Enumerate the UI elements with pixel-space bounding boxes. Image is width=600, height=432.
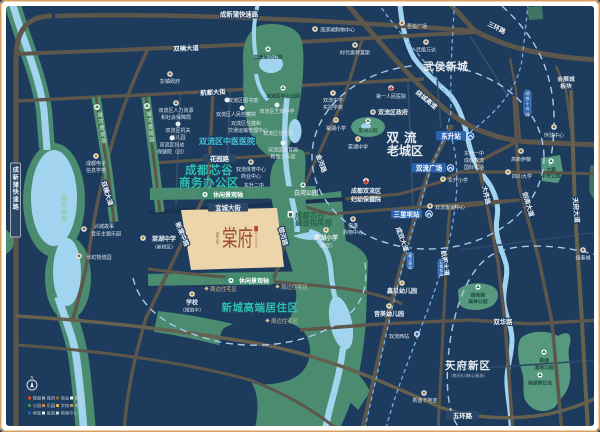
svg-text:乐园: 乐园 <box>47 402 55 409</box>
svg-text:东升一中: 东升一中 <box>464 150 484 157</box>
svg-text:音美幼儿园: 音美幼儿园 <box>374 310 404 318</box>
svg-text:湿地公园: 湿地公园 <box>534 364 553 371</box>
svg-text:维他路: 维他路 <box>471 292 486 299</box>
svg-text:新蓝卡地亚: 新蓝卡地亚 <box>412 397 437 404</box>
svg-text:成都芯谷: 成都芯谷 <box>185 163 233 177</box>
svg-text:森林公园: 森林公园 <box>468 298 487 305</box>
svg-text:南湖梦幻岛: 南湖梦幻岛 <box>528 380 552 387</box>
svg-text:地铁: 地铁 <box>33 410 42 417</box>
svg-text:海滨城购物中心: 海滨城购物中心 <box>320 27 355 34</box>
svg-text:四川大学: 四川大学 <box>512 173 532 180</box>
svg-text:双流区人力资源: 双流区人力资源 <box>158 107 193 114</box>
svg-text:地铁十号线: 地铁十号线 <box>526 90 530 117</box>
svg-text:兴城故事: 兴城故事 <box>94 223 114 230</box>
svg-text:武侯新城: 武侯新城 <box>423 60 468 73</box>
svg-text:吾悦广场: 吾悦广场 <box>407 23 427 30</box>
svg-text:N: N <box>31 375 34 380</box>
svg-text:保健院（旧）: 保健院（旧） <box>157 149 187 156</box>
svg-text:国际机场: 国际机场 <box>464 164 484 171</box>
svg-text:（南区）: （南区） <box>316 242 335 249</box>
svg-text:棠湖小学: 棠湖小学 <box>326 125 346 132</box>
svg-text:双流区艺体中学: 双流区艺体中学 <box>259 108 294 115</box>
svg-text:成新蒲快速路: 成新蒲快速路 <box>13 166 20 211</box>
svg-text:藏卫路站: 藏卫路站 <box>408 253 412 270</box>
svg-text:双流区妇幼: 双流区妇幼 <box>159 142 184 149</box>
svg-text:信息学校: 信息学校 <box>86 167 106 174</box>
svg-text:成新蒲快速路: 成新蒲快速路 <box>220 10 259 19</box>
svg-text:南湖: 南湖 <box>539 357 549 364</box>
svg-text:休闲景观轴: 休闲景观轴 <box>212 191 243 199</box>
svg-text:周边住宅区: 周边住宅区 <box>271 317 299 325</box>
svg-text:棠湖中学: 棠湖中学 <box>151 235 176 243</box>
svg-text:和青少年宫: 和青少年宫 <box>270 154 295 161</box>
svg-text:商业: 商业 <box>61 395 69 402</box>
svg-text:成都双流: 成都双流 <box>464 157 484 164</box>
svg-text:周边住宅区: 周边住宅区 <box>210 285 238 293</box>
svg-text:车站: 车站 <box>75 402 83 409</box>
svg-text:白河公园: 白河公园 <box>294 189 318 197</box>
svg-text:天府新区: 天府新区 <box>445 359 491 372</box>
svg-text:规划绿地: 规划绿地 <box>61 194 67 223</box>
svg-text:双流中学: 双流中学 <box>323 97 343 104</box>
svg-text:双华路: 双华路 <box>493 317 513 326</box>
svg-text:音乐主题乐园: 音乐主题乐园 <box>91 231 121 238</box>
svg-text:商业中心: 商业中心 <box>241 173 261 180</box>
svg-text:五根松站: 五根松站 <box>439 261 443 277</box>
svg-text:绿泰城: 绿泰城 <box>575 255 590 262</box>
svg-text:建设指挥部: 建设指挥部 <box>294 219 333 228</box>
svg-text:商务办公区: 商务办公区 <box>179 176 239 190</box>
svg-text:购物中心: 购物中心 <box>343 229 363 236</box>
svg-text:空港: 空港 <box>348 223 358 230</box>
svg-text:棠湖中学: 棠湖中学 <box>348 144 368 151</box>
svg-text:妇幼保健院: 妇幼保健院 <box>351 196 381 204</box>
svg-text:武侯万达: 武侯万达 <box>416 47 436 54</box>
svg-text:双流体育中心: 双流体育中心 <box>236 166 266 173</box>
svg-text:长虹物流园: 长虹物流园 <box>86 254 111 261</box>
svg-text:东升二中: 东升二中 <box>244 182 264 189</box>
svg-text:环球中心: 环球中心 <box>544 132 564 139</box>
svg-text:鑫贝幼儿园: 鑫贝幼儿园 <box>386 287 417 295</box>
svg-text:双流: 双流 <box>385 130 421 145</box>
svg-text:宜城大街: 宜城大街 <box>215 203 241 212</box>
svg-text:和社会保障局: 和社会保障局 <box>161 114 191 121</box>
svg-text:时代奥特莱斯: 时代奥特莱斯 <box>340 50 370 57</box>
svg-text:学校: 学校 <box>61 402 70 409</box>
svg-text:成都电子: 成都电子 <box>86 160 106 167</box>
svg-text:东升小学: 东升小学 <box>448 177 468 184</box>
svg-text:双流区图书馆: 双流区图书馆 <box>228 97 258 104</box>
svg-text:中央公园: 中央公园 <box>541 173 560 180</box>
svg-text:彭镇政府: 彭镇政府 <box>160 78 180 85</box>
svg-text:（规划中）: （规划中） <box>180 307 204 314</box>
svg-text:高新伊藤: 高新伊藤 <box>511 156 531 163</box>
svg-text:双流运动公园: 双流运动公园 <box>254 54 283 61</box>
svg-text:（南天5.0核心板块）: （南天5.0核心板块） <box>448 372 487 379</box>
svg-text:双流区政府: 双流区政府 <box>378 109 408 117</box>
svg-text:湖畔系列: 湖畔系列 <box>216 231 219 246</box>
svg-text:休闲景观轴: 休闲景观轴 <box>238 277 269 285</box>
svg-text:学校: 学校 <box>186 299 199 307</box>
svg-text:双流区机关: 双流区机关 <box>165 127 190 134</box>
svg-text:周边住宅区: 周边住宅区 <box>281 283 309 291</box>
svg-text:医院: 医院 <box>47 410 56 417</box>
svg-text:三里坝站: 三里坝站 <box>394 210 421 219</box>
svg-text:政府: 政府 <box>47 395 55 402</box>
svg-text:双流客运中心: 双流客运中心 <box>435 204 465 211</box>
svg-text:双流区住建局: 双流区住建局 <box>263 130 293 137</box>
svg-text:东升站: 东升站 <box>441 132 461 141</box>
svg-text:棠湖小学: 棠湖小学 <box>313 234 338 242</box>
svg-text:会展城: 会展城 <box>557 75 575 83</box>
svg-text:棠府: 棠府 <box>222 226 253 251</box>
svg-text:第一人民医院: 第一人民医院 <box>376 93 406 100</box>
svg-text:成都双流区: 成都双流区 <box>351 187 381 195</box>
svg-text:双流区人民检察院: 双流区人民检察院 <box>216 111 256 118</box>
svg-text:五环路: 五环路 <box>453 411 473 420</box>
svg-text:医疗: 医疗 <box>75 395 83 402</box>
svg-text:双流西站: 双流西站 <box>389 333 409 340</box>
svg-text:楼盘: 楼盘 <box>33 395 41 402</box>
svg-text:双流区中医医院: 双流区中医医院 <box>199 136 255 146</box>
svg-text:花园路: 花园路 <box>210 154 230 163</box>
svg-text:实验学校: 实验学校 <box>323 104 343 111</box>
svg-text:新城高端居住区: 新城高端居住区 <box>222 301 299 314</box>
svg-text:棠湖公园: 棠湖公园 <box>357 127 377 134</box>
svg-text:大源: 大源 <box>546 166 556 173</box>
svg-text:购物中心: 购物中心 <box>61 410 79 417</box>
svg-text:双流区教育局: 双流区教育局 <box>268 147 298 154</box>
svg-text:板块: 板块 <box>560 82 572 90</box>
svg-text:双流区中心公园: 双流区中心公园 <box>266 93 300 100</box>
svg-text:（新校区）: （新校区） <box>152 244 176 251</box>
svg-text:老城区: 老城区 <box>387 143 423 158</box>
svg-text:双流区住建和: 双流区住建和 <box>231 120 261 127</box>
svg-text:双流广场: 双流广场 <box>416 164 443 173</box>
